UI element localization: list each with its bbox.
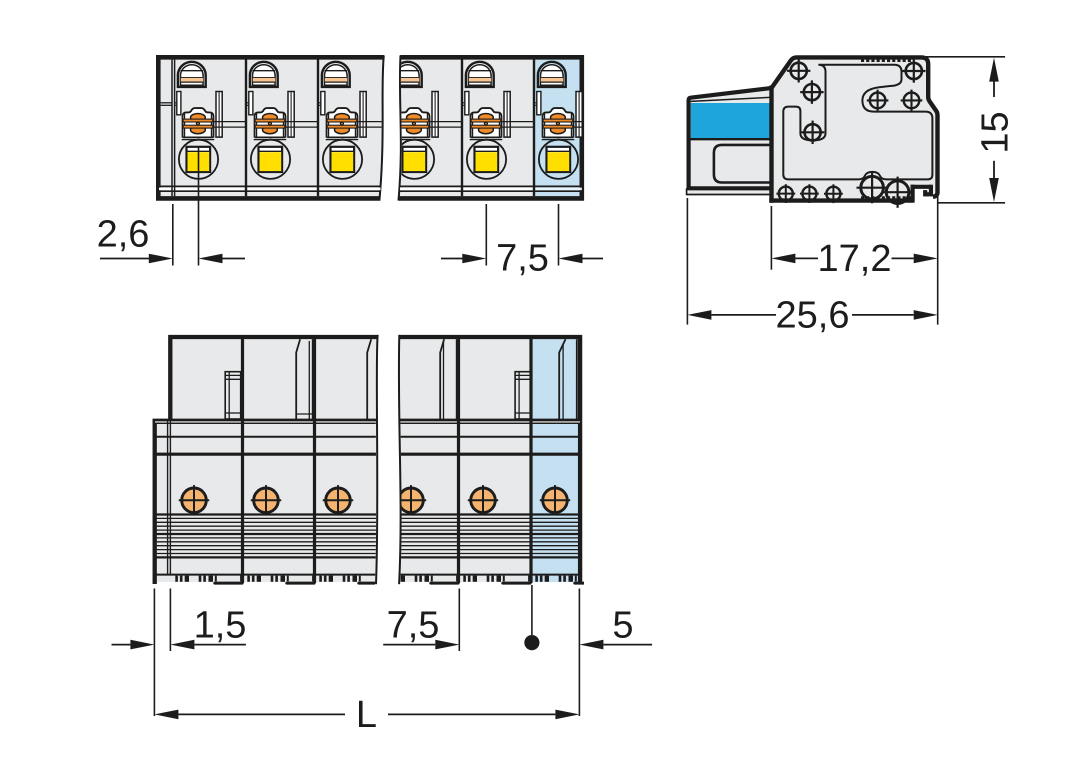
svg-text:15: 15 xyxy=(975,111,1017,153)
svg-text:1,5: 1,5 xyxy=(194,605,247,647)
svg-text:7,5: 7,5 xyxy=(387,605,440,647)
svg-text:2,6: 2,6 xyxy=(97,214,150,256)
svg-text:17,2: 17,2 xyxy=(818,238,892,280)
svg-text:25,6: 25,6 xyxy=(776,295,850,337)
svg-text:7,5: 7,5 xyxy=(496,238,549,280)
svg-text:5: 5 xyxy=(612,605,633,647)
svg-text:L: L xyxy=(356,694,377,736)
